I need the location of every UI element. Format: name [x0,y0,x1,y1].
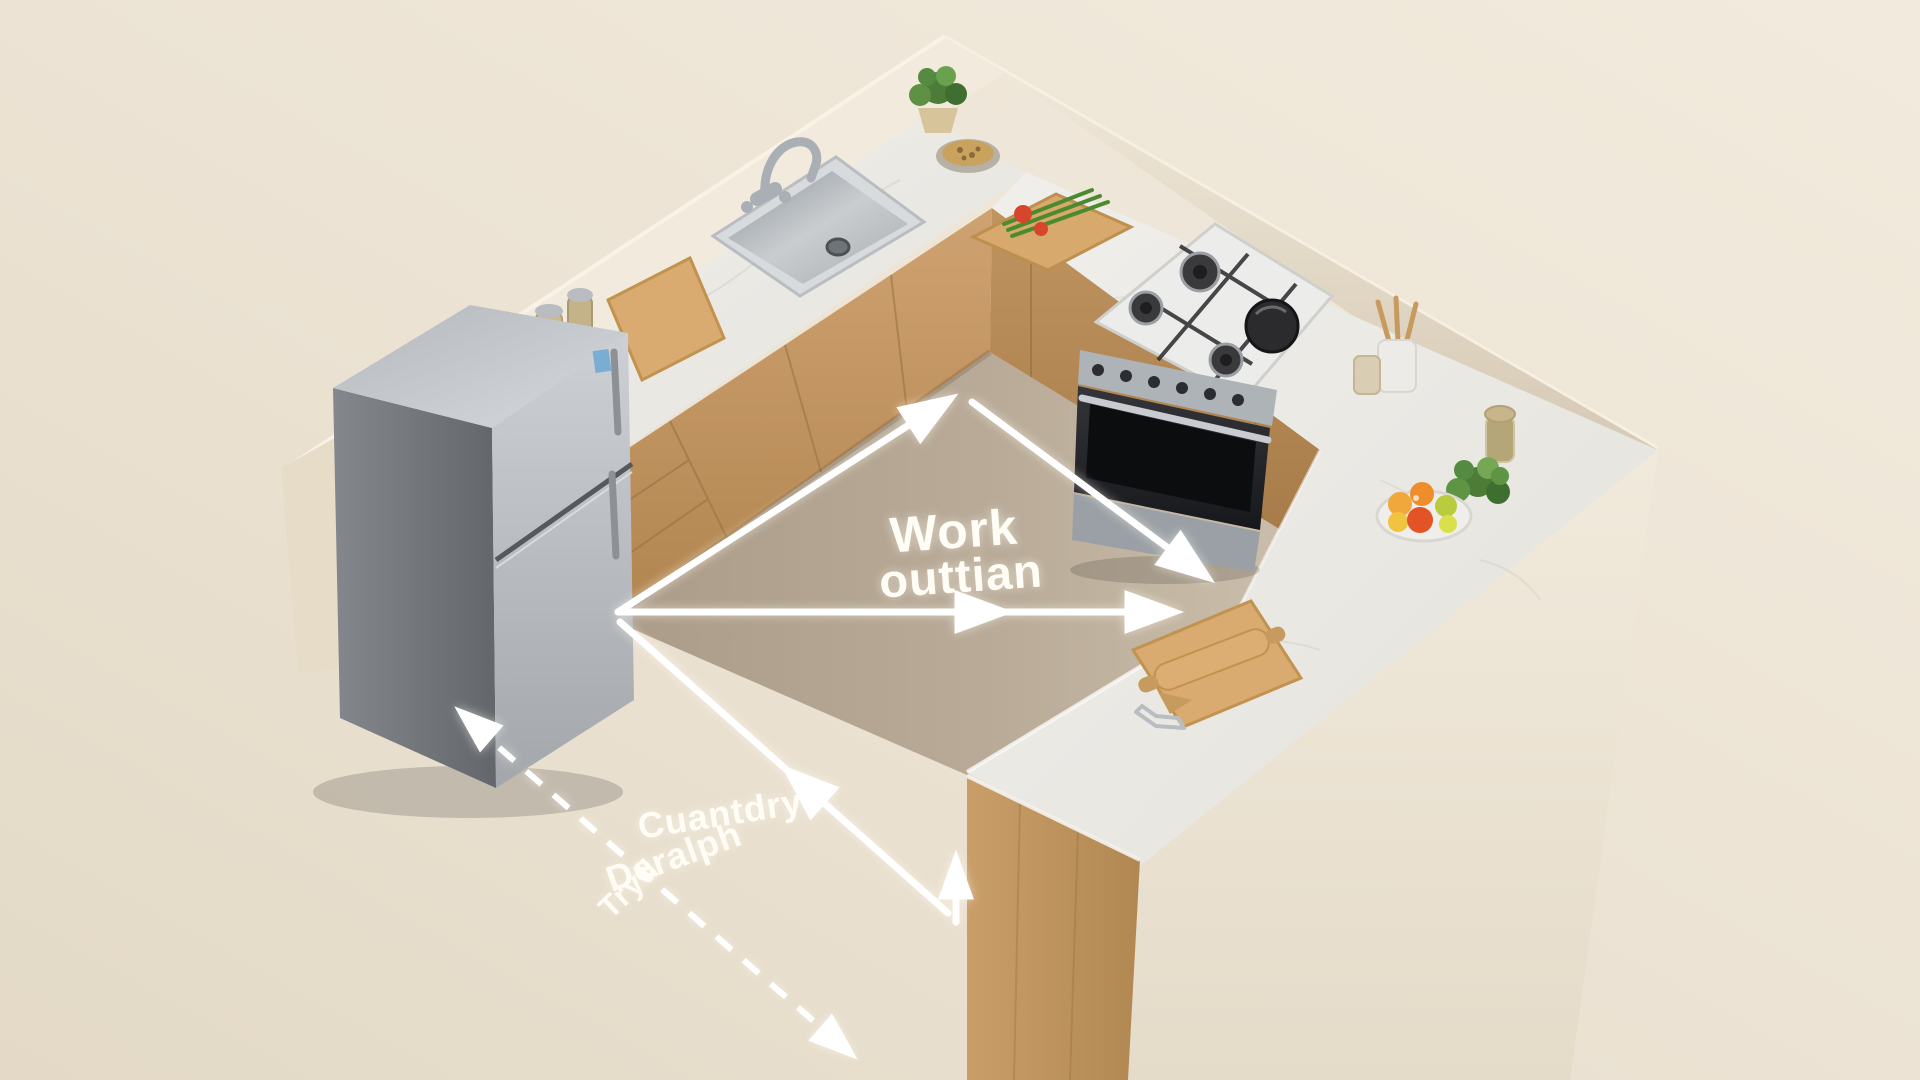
energy-sticker [593,349,612,373]
kitchen-scene: Work outtian Cuantdry Deralph Tryd [0,0,1920,1080]
kitchen-work-triangle-illustration: Work outtian Cuantdry Deralph Tryd [0,0,1920,1080]
tomato [1014,205,1032,223]
fridge-handle [612,474,616,556]
tomato [1034,222,1048,236]
freezer-handle [614,352,618,432]
snack-bowl [936,139,1000,173]
sink-drain [827,239,849,255]
spice-jar-right [1485,406,1515,462]
